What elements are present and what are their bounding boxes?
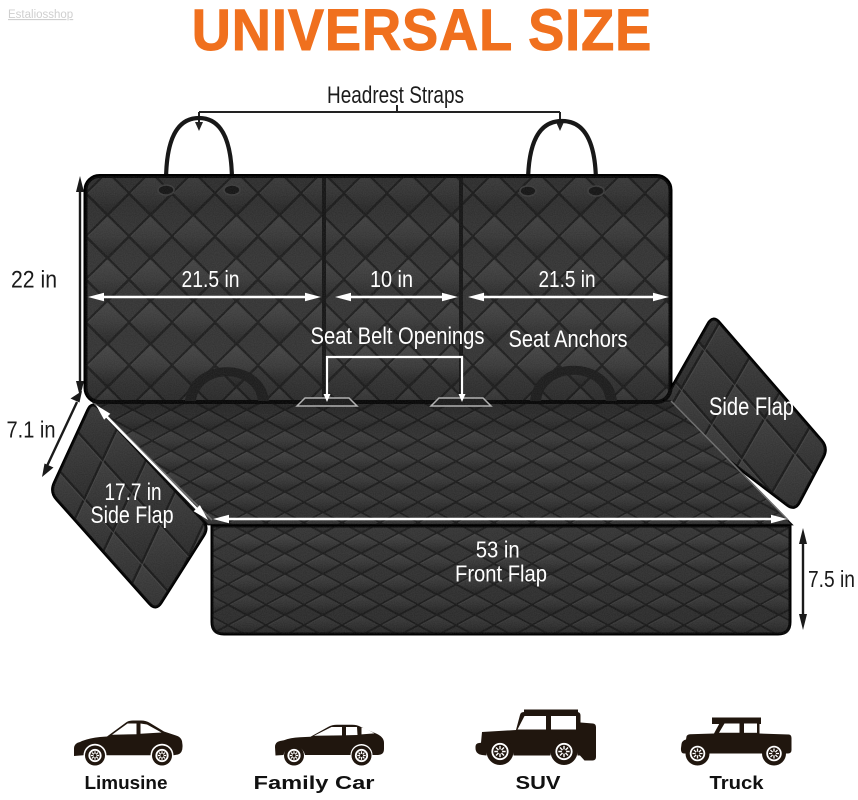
svg-text:7.1 in: 7.1 in [7,417,56,443]
svg-text:10 in: 10 in [370,266,413,292]
svg-text:Side Flap: Side Flap [709,393,794,421]
svg-text:21.5 in: 21.5 in [539,266,596,292]
svg-text:53 in: 53 in [476,537,520,563]
svg-text:Estaliosshop: Estaliosshop [8,9,73,21]
svg-text:Seat Belt Openings: Seat Belt Openings [311,323,485,350]
svg-text:Front Flap: Front Flap [455,561,547,587]
svg-text:Seat Anchors: Seat Anchors [509,326,628,353]
svg-text:Truck: Truck [710,773,765,793]
svg-text:Limusine: Limusine [85,773,168,793]
svg-text:Side Flap: Side Flap [91,502,174,529]
svg-text:21.5 in: 21.5 in [182,266,240,292]
svg-text:Family Car: Family Car [254,773,375,793]
svg-text:UNIVERSAL SIZE: UNIVERSAL SIZE [192,0,653,62]
svg-text:22 in: 22 in [11,267,57,294]
svg-text:Headrest Straps: Headrest Straps [327,82,464,109]
svg-text:7.5 in: 7.5 in [808,566,855,592]
svg-text:SUV: SUV [516,773,561,793]
